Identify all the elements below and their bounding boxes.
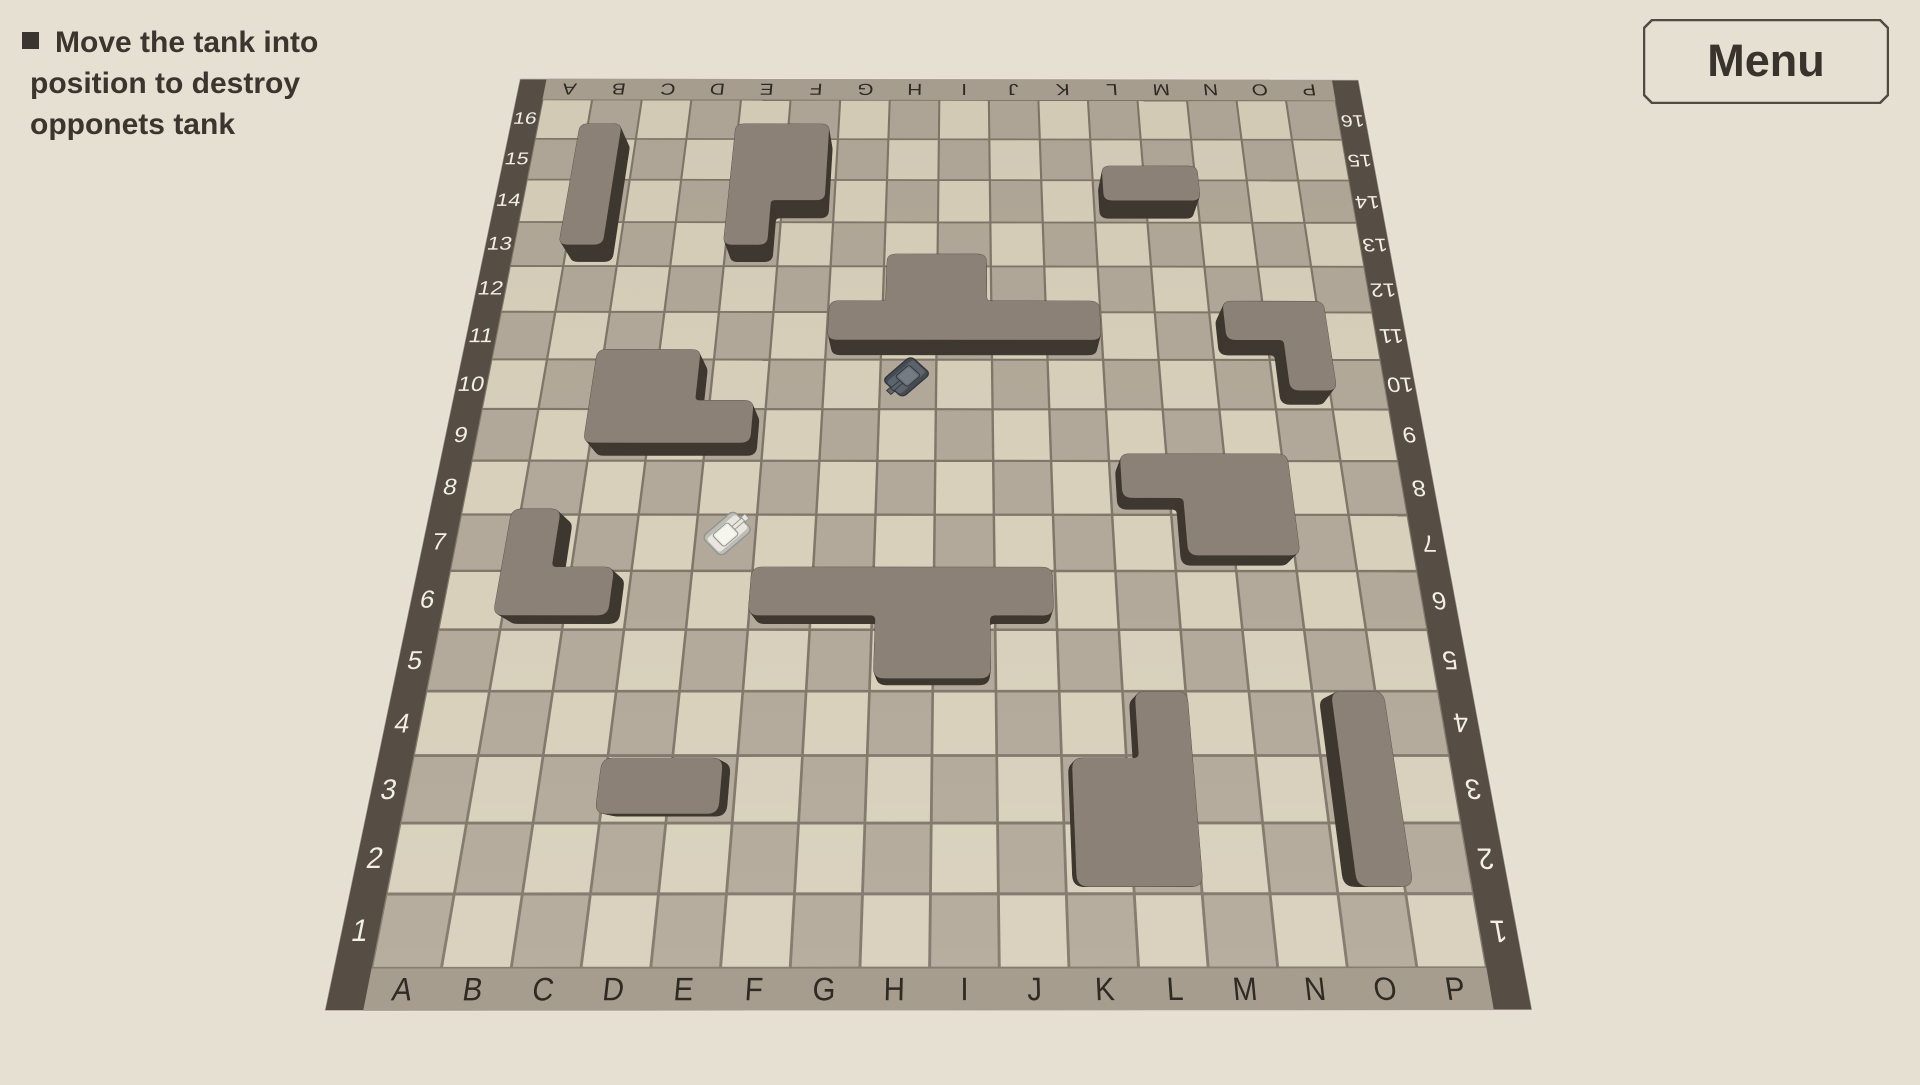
- svg-text:J: J: [1027, 971, 1043, 1008]
- svg-text:H: H: [883, 971, 905, 1008]
- svg-text:N: N: [1302, 971, 1327, 1008]
- svg-text:C: C: [659, 80, 677, 98]
- svg-text:15: 15: [1346, 150, 1373, 169]
- svg-text:M: M: [1152, 81, 1171, 99]
- svg-text:B: B: [610, 80, 627, 98]
- svg-text:L: L: [1106, 81, 1119, 99]
- svg-text:13: 13: [485, 233, 514, 254]
- svg-text:N: N: [1202, 81, 1219, 99]
- svg-text:12: 12: [476, 278, 505, 299]
- svg-text:P: P: [1301, 81, 1318, 99]
- svg-text:H: H: [907, 80, 922, 98]
- svg-text:11: 11: [467, 324, 496, 347]
- svg-text:15: 15: [503, 149, 531, 168]
- svg-text:M: M: [1231, 971, 1259, 1008]
- svg-text:F: F: [744, 971, 765, 1008]
- svg-text:G: G: [812, 971, 837, 1008]
- svg-text:E: E: [759, 80, 774, 98]
- svg-text:J: J: [1008, 81, 1019, 99]
- svg-text:O: O: [1371, 971, 1399, 1007]
- svg-text:E: E: [672, 971, 695, 1008]
- svg-text:K: K: [1055, 81, 1070, 99]
- svg-text:D: D: [709, 80, 726, 98]
- svg-text:G: G: [857, 80, 874, 98]
- svg-text:14: 14: [1353, 192, 1381, 212]
- svg-text:13: 13: [1361, 234, 1389, 255]
- svg-text:11: 11: [1377, 325, 1405, 348]
- svg-text:I: I: [961, 80, 967, 98]
- svg-text:10: 10: [1385, 373, 1415, 396]
- svg-text:14: 14: [494, 191, 522, 211]
- svg-text:12: 12: [1369, 279, 1398, 300]
- svg-text:16: 16: [511, 110, 538, 128]
- svg-text:O: O: [1250, 81, 1269, 99]
- svg-text:K: K: [1094, 971, 1116, 1008]
- svg-text:I: I: [960, 971, 968, 1008]
- svg-text:10: 10: [456, 372, 487, 395]
- svg-text:16: 16: [1339, 111, 1366, 129]
- svg-text:D: D: [601, 971, 627, 1008]
- svg-text:L: L: [1165, 971, 1184, 1008]
- svg-text:F: F: [809, 80, 823, 98]
